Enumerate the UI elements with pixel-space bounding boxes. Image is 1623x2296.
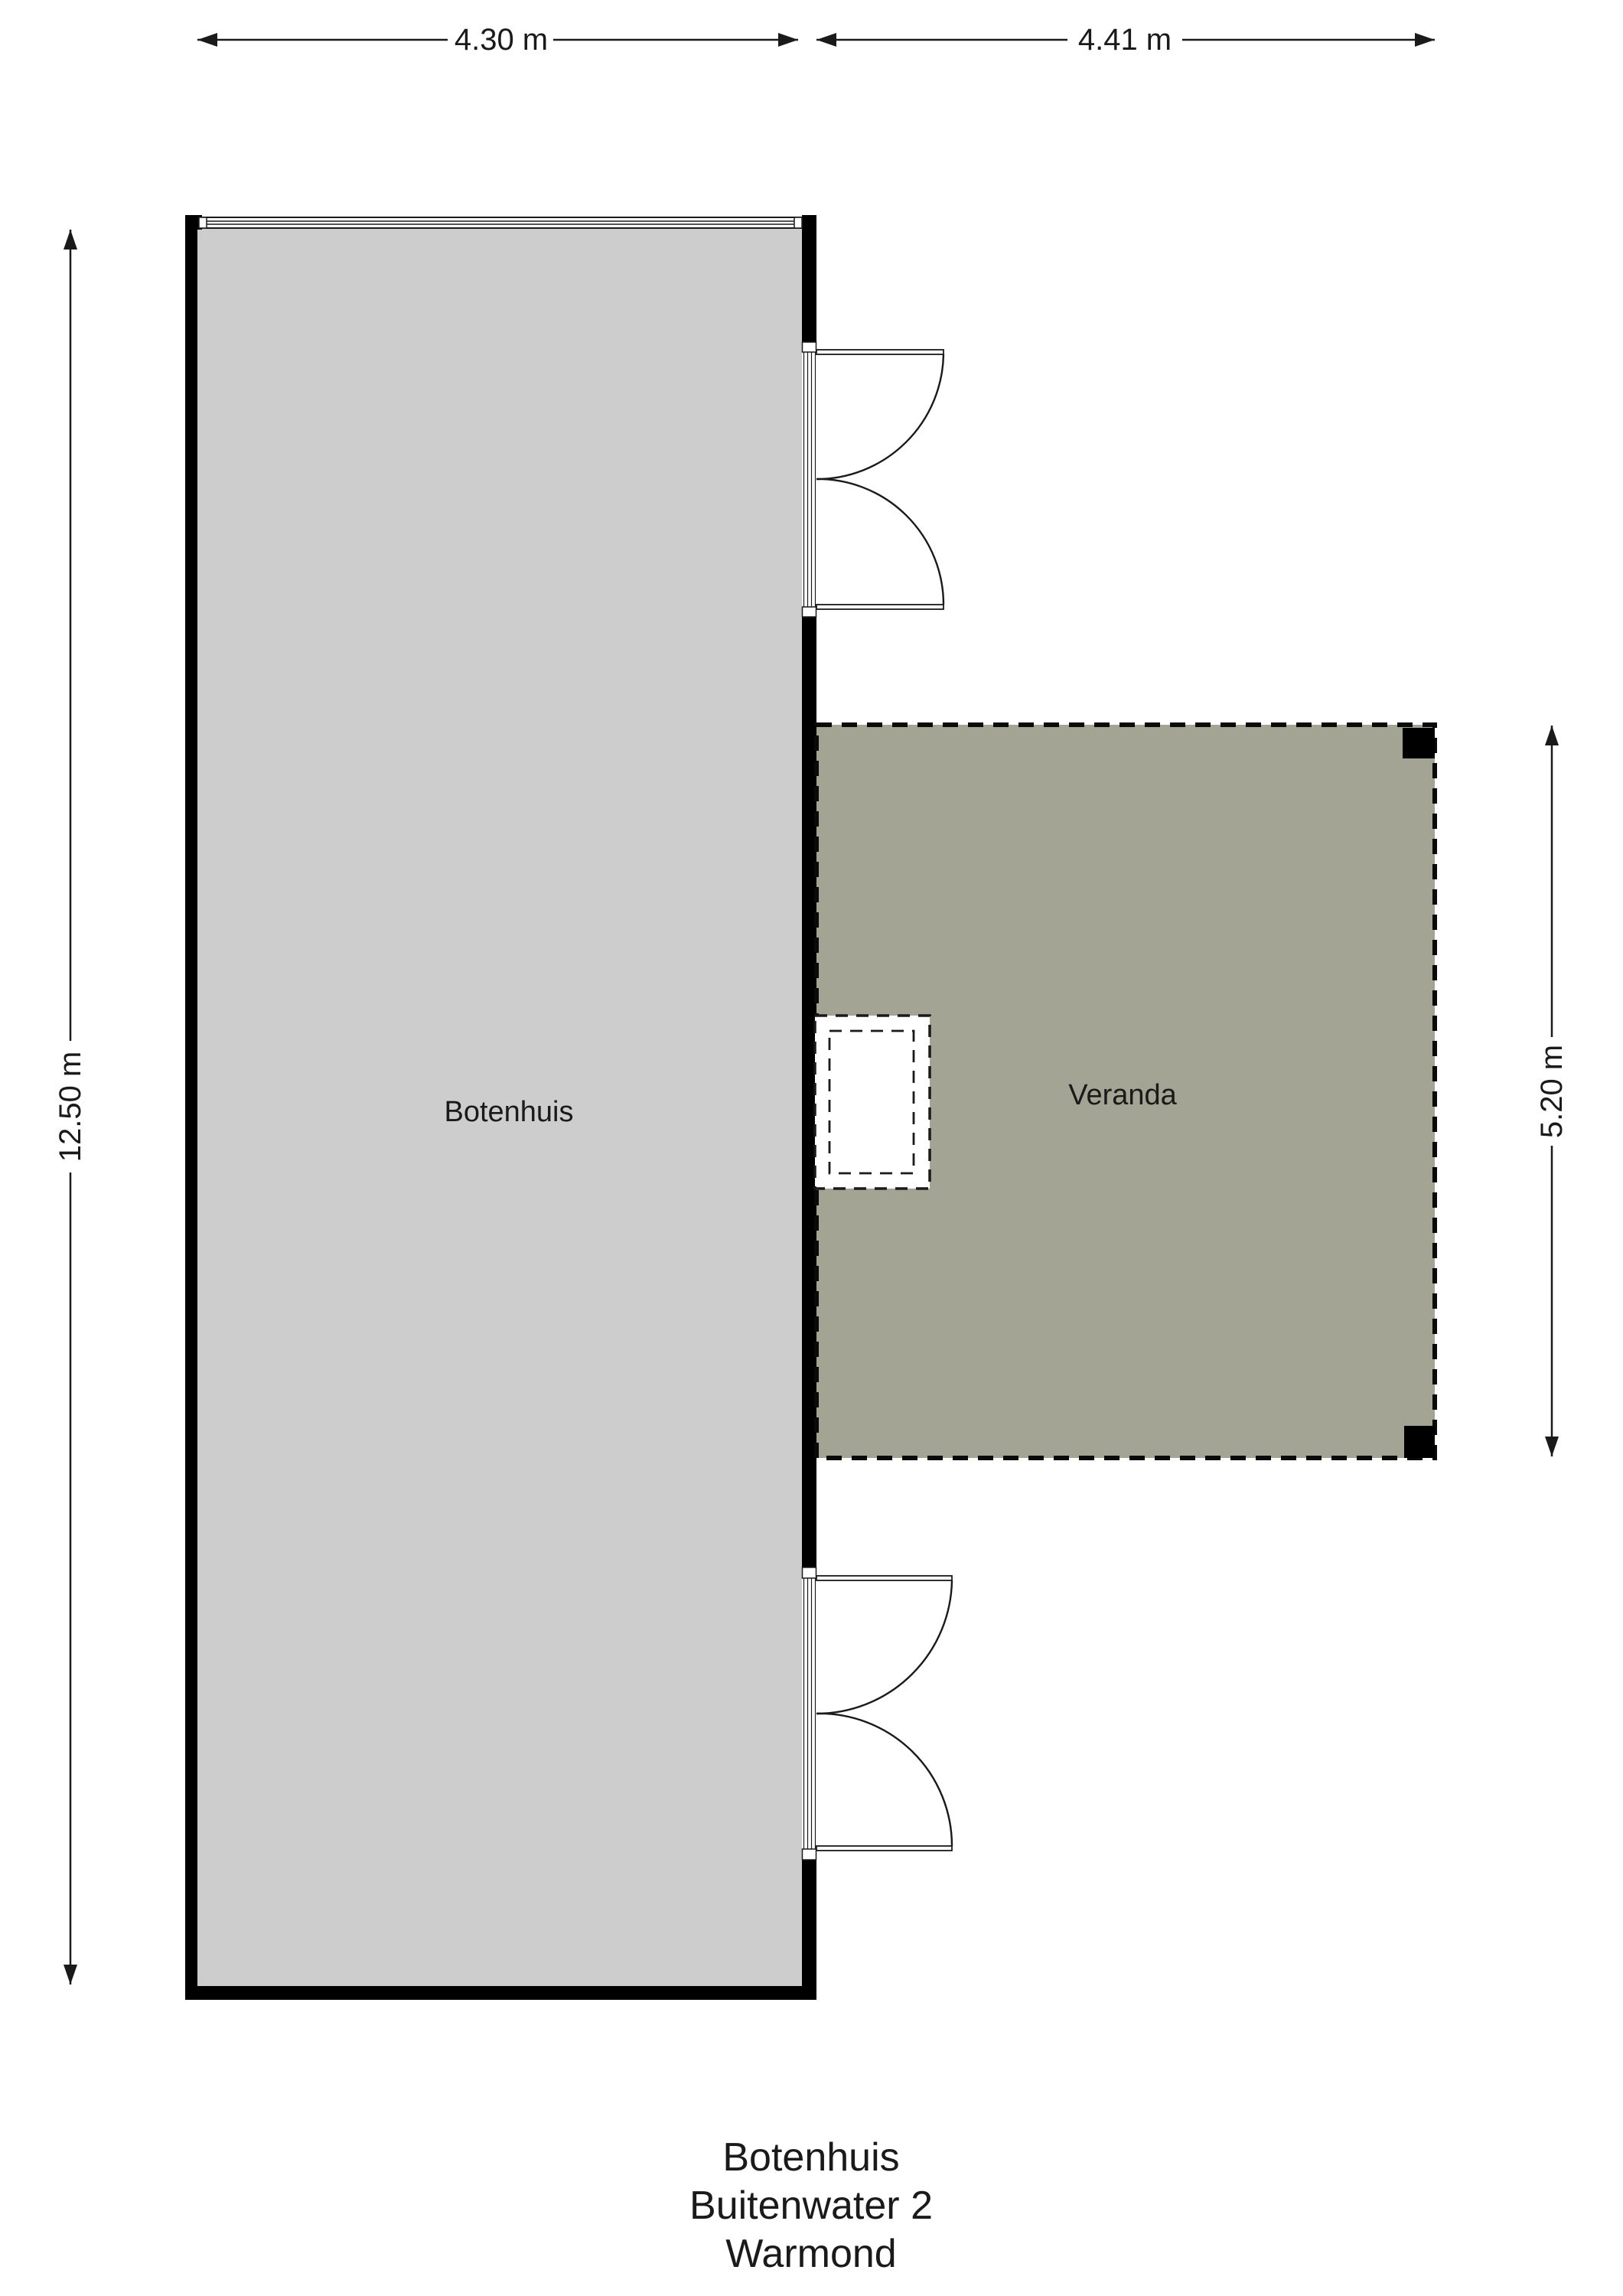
dimension-label: 12.50 m — [54, 1052, 87, 1163]
boathouse-room-label: Botenhuis — [444, 1096, 573, 1128]
door-jamb — [803, 1849, 816, 1860]
overhead-hatch — [815, 1016, 930, 1189]
arrowhead-down-icon — [64, 1965, 77, 1985]
double-door-top — [802, 342, 943, 617]
door-swing-arc — [816, 479, 943, 605]
double-door-bottom — [802, 1567, 952, 1860]
arrowhead-left-icon — [197, 33, 217, 47]
arrowhead-right-icon — [778, 33, 798, 47]
door-jamb — [803, 342, 816, 352]
title-line-1: Botenhuis — [722, 2135, 899, 2180]
arrowhead-left-icon — [816, 33, 836, 47]
window-frame — [199, 217, 802, 228]
arrowhead-up-icon — [64, 230, 77, 249]
dimension-label: 5.20 m — [1535, 1045, 1569, 1138]
veranda-post-top-right — [1403, 728, 1435, 758]
title-line-3: Warmond — [725, 2232, 896, 2276]
title-line-2: Buitenwater 2 — [689, 2183, 933, 2228]
floor-plan-canvas: 4.30 m 4.41 m 12.50 m 5.20 m Botenhuis V… — [0, 0, 1623, 2296]
window-end-cap — [794, 217, 802, 228]
floor-plan-page: 4.30 m 4.41 m 12.50 m 5.20 m Botenhuis V… — [0, 0, 1623, 2296]
door-swing-arc — [816, 1714, 952, 1846]
arrowhead-up-icon — [1545, 726, 1559, 745]
dimension-veranda-width: 4.41 m — [816, 23, 1435, 57]
arrowhead-right-icon — [1415, 33, 1435, 47]
arrowhead-down-icon — [1545, 1437, 1559, 1456]
door-leaf-upper — [816, 1576, 952, 1580]
door-jamb — [803, 607, 816, 617]
boathouse-bottom-wall — [185, 1986, 816, 2000]
door-jamb — [803, 1567, 816, 1578]
dimension-boathouse-depth: 12.50 m — [54, 230, 87, 1985]
window-end-cap — [199, 217, 207, 228]
dimension-label: 4.41 m — [1078, 23, 1172, 57]
boathouse-right-wall-lower — [802, 1860, 816, 2000]
top-window — [199, 217, 802, 228]
veranda-post-bottom-right — [1404, 1426, 1435, 1458]
door-swing-arc — [816, 1580, 952, 1714]
door-swing-arc — [816, 354, 943, 479]
boathouse-left-wall — [185, 215, 197, 2000]
boathouse-right-wall-upper — [802, 215, 816, 342]
dimension-label: 4.30 m — [455, 23, 548, 57]
dimension-boathouse-width: 4.30 m — [197, 23, 798, 57]
dimension-veranda-depth: 5.20 m — [1535, 726, 1569, 1456]
overhead-hatch-outer — [815, 1016, 930, 1189]
door-leaf-upper — [816, 350, 943, 354]
plan-title: Botenhuis Buitenwater 2 Warmond — [689, 2135, 933, 2276]
door-leaf-lower — [816, 1846, 952, 1851]
veranda-room-label: Veranda — [1068, 1079, 1177, 1111]
door-leaf-lower — [816, 605, 943, 609]
